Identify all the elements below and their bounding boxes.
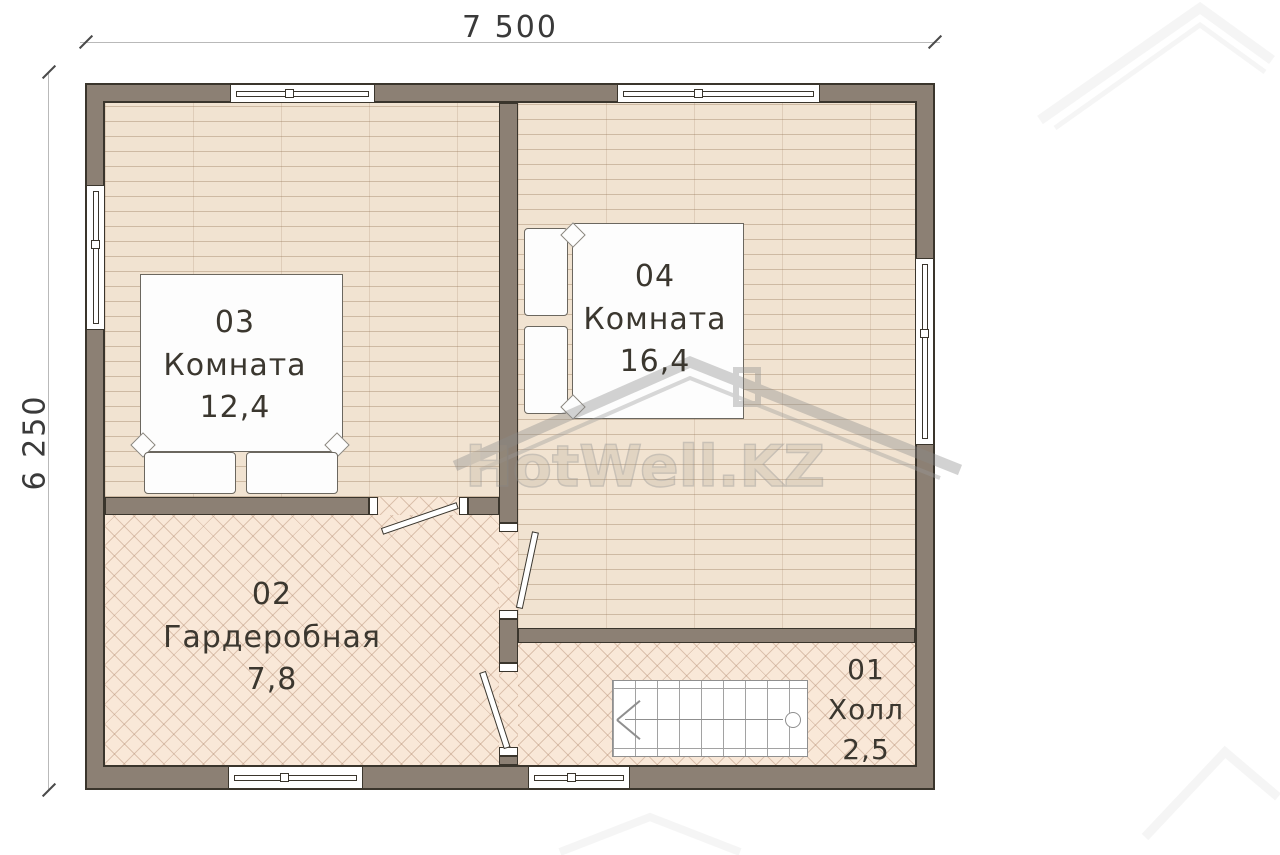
window-left-room03: [86, 185, 105, 330]
watermark-brand-text: HotWell.KZ: [465, 434, 825, 500]
room-03-label: 03 Комната 12,4: [135, 302, 335, 430]
room-area: 2,5: [800, 730, 932, 770]
dimension-height-line: [48, 72, 49, 790]
dimension-width-label: 7 500: [420, 10, 600, 45]
room-01-label: 01 Холл 2,5: [800, 650, 932, 769]
wall-room04-hall: [518, 628, 915, 643]
roof-watermark-icon: [1140, 742, 1280, 855]
room-04-label: 04 Комната 16,4: [555, 256, 755, 384]
stairs-newel-circle: [785, 712, 801, 728]
floor-plan-canvas: 7 500 6 250: [0, 0, 1280, 855]
stairs-center-line: [625, 719, 783, 720]
dimension-tick: [42, 65, 56, 79]
door-opening-floor: [499, 532, 518, 610]
window-top-room04: [617, 84, 820, 103]
door-jamb: [499, 523, 518, 532]
room-number: 04: [555, 256, 755, 299]
window-bottom-room02: [228, 766, 363, 789]
bed-pillow: [246, 452, 338, 494]
door-jamb: [499, 663, 518, 672]
roof-watermark-icon: [555, 812, 745, 855]
door-jamb: [499, 610, 518, 619]
door-jamb: [369, 497, 378, 515]
room-02-label: 02 Гардеробная 7,8: [152, 574, 392, 702]
wall-center-vertical-lower: [499, 619, 518, 663]
wall-center-vertical-stub: [499, 756, 518, 765]
stairs-symbol: [612, 680, 808, 757]
window-top-room03: [230, 84, 375, 103]
room-number: 03: [135, 302, 335, 345]
room-name: Комната: [555, 299, 755, 342]
door-jamb: [499, 747, 518, 756]
room-name: Комната: [135, 345, 335, 388]
dimension-width-line: [80, 42, 940, 43]
room-area: 7,8: [152, 659, 392, 702]
room-area: 12,4: [135, 387, 335, 430]
window-bottom-hall: [528, 766, 630, 789]
room-name: Гардеробная: [152, 617, 392, 660]
roof-watermark-icon: [1020, 0, 1280, 150]
room-number: 02: [152, 574, 392, 617]
room-name: Холл: [800, 690, 932, 730]
room-number: 01: [800, 650, 932, 690]
room-area: 16,4: [555, 341, 755, 384]
bed-pillow: [144, 452, 236, 494]
dimension-tick: [42, 783, 56, 797]
wall-room03-room02-left: [105, 497, 369, 515]
